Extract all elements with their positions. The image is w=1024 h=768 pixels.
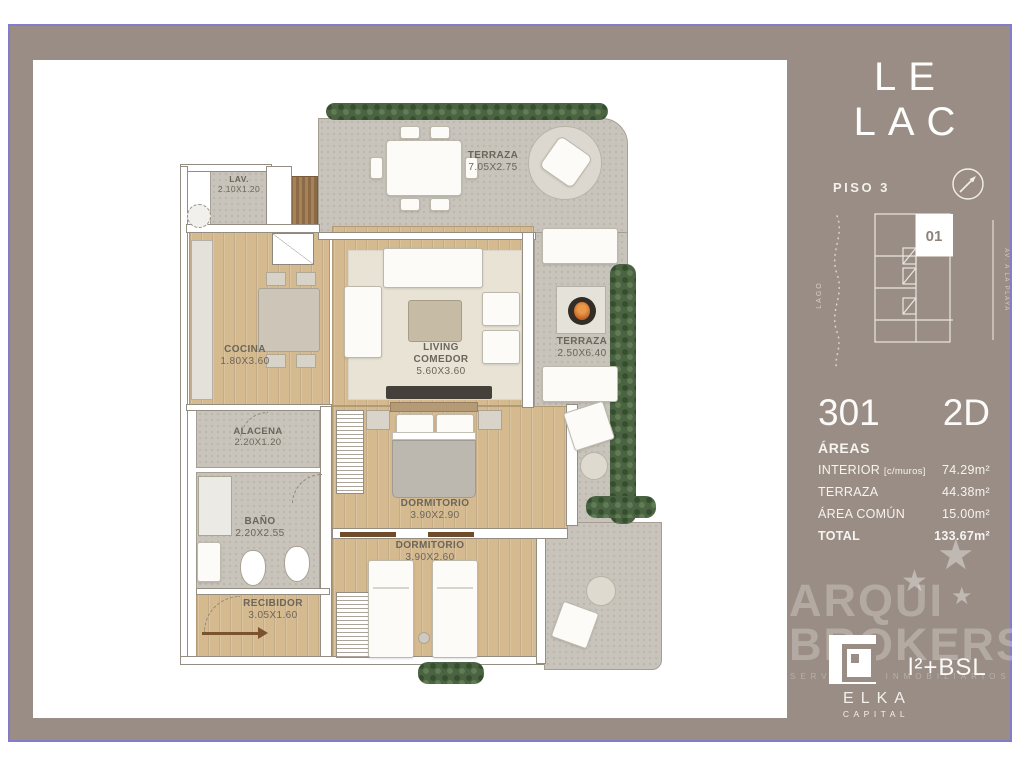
room-name: DORMITORIO: [390, 498, 480, 510]
wardrobe: [336, 410, 364, 494]
armchair: [482, 292, 520, 326]
lounge-cushion: [539, 135, 594, 189]
room-dims: 2.20x2.55: [218, 528, 302, 540]
star-icon: ★: [951, 582, 973, 611]
kitchen-counter: [191, 240, 213, 400]
chair: [430, 126, 450, 139]
areas-row-total: TOTAL 133.67m²: [818, 529, 990, 543]
room-label-terraza-right: TERRAZA 2.50x6.40: [543, 336, 621, 360]
bathroom-vanity: [197, 542, 221, 582]
logo-inner-square: [842, 644, 876, 682]
room-name: COCINA: [203, 344, 287, 356]
toilet: [240, 550, 266, 586]
project-title: LE LAC: [800, 55, 1013, 145]
tv-console: [386, 386, 492, 399]
chair: [400, 126, 420, 139]
area-label: ÁREA COMÚN: [818, 507, 905, 521]
nightstand: [478, 410, 502, 430]
sliding-door: [428, 532, 474, 537]
fire-bowl: [568, 297, 596, 325]
pouf: [586, 576, 616, 606]
developer-name: ELKA: [812, 690, 936, 708]
kitchen-table: [258, 288, 320, 352]
wardrobe: [336, 592, 370, 658]
room-name: TERRAZA: [447, 150, 539, 162]
lake-label: LAGO: [816, 281, 823, 308]
area-value: 74.29m²: [942, 463, 990, 477]
room-label-bano: BAÑO 2.20x2.55: [218, 516, 302, 540]
wall: [522, 232, 534, 408]
developer-logo-elka: ELKA CAPITAL: [812, 690, 936, 719]
room-name: LIVING: [398, 342, 484, 354]
room-name: TERRAZA: [543, 336, 621, 348]
floor-label: PISO 3: [833, 180, 890, 195]
room-label-terraza-top: TERRAZA 7.05x2.75: [447, 150, 539, 174]
room-dims: 5.60x3.60: [398, 366, 484, 378]
room-name: LAV.: [211, 174, 267, 184]
unit-row: 301 2D: [818, 392, 990, 434]
building-key-plan: LAGO 01 AV. A LA PLAYA: [815, 200, 1010, 392]
avenue-label: AV. A LA PLAYA: [1003, 248, 1009, 311]
chair: [266, 272, 286, 286]
wall: [536, 538, 546, 664]
areas-row-terraza: TERRAZA 44.38m²: [818, 485, 990, 499]
room-label-dormitorio-2: DORMITORIO 3.90x2.60: [384, 540, 476, 564]
fire-pit: [556, 286, 606, 334]
single-bed: [432, 560, 478, 658]
bidet: [284, 546, 310, 582]
room-dims: 3.90x2.90: [390, 510, 480, 522]
room-dims: 2.20x1.20: [211, 437, 305, 448]
room-name: ALACENA: [211, 426, 305, 437]
washer: [187, 204, 211, 228]
single-bed: [368, 560, 414, 658]
bed-blanket: [392, 440, 476, 498]
areas-table: ÁREAS INTERIOR [c/muros] 74.29m² TERRAZA…: [818, 440, 990, 551]
wall: [186, 404, 332, 411]
area-label: TERRAZA: [818, 485, 878, 499]
room-name: RECIBIDOR: [222, 598, 324, 610]
watermark-arqui: ARQUI: [789, 580, 944, 621]
hedge: [326, 103, 608, 120]
unit-typology: 2D: [943, 392, 990, 434]
sliding-door: [340, 532, 396, 537]
area-label: INTERIOR [c/muros]: [818, 463, 926, 477]
stool: [418, 632, 430, 644]
chair: [400, 198, 420, 211]
chair: [430, 198, 450, 211]
areas-row-area-comun: ÁREA COMÚN 15.00m²: [818, 507, 990, 521]
bed-headboard: [390, 402, 478, 412]
developer-subtitle: CAPITAL: [812, 709, 936, 719]
room-label-cocina: COCINA 1.80x3.60: [203, 344, 287, 368]
bed-sheet: [392, 432, 476, 440]
room-label-recibidor: RECIBIDOR 3.05x1.60: [222, 598, 324, 622]
areas-row-interior: INTERIOR [c/muros] 74.29m²: [818, 463, 990, 477]
unit-01-label: 01: [926, 228, 943, 245]
wood-deck: [289, 176, 318, 229]
wall: [196, 588, 330, 595]
room-label-living: LIVING COMEDOR 5.60x3.60: [398, 342, 484, 378]
room-name: COMEDOR: [398, 354, 484, 366]
entry-arrow: [202, 632, 258, 635]
wall: [318, 232, 536, 240]
brochure-page: TERRAZA 7.05x2.75 LAV. 2.10x1.20 COCINA …: [0, 0, 1024, 768]
coffee-table: [408, 300, 462, 342]
armchair: [482, 330, 520, 364]
hedge: [418, 662, 484, 684]
outdoor-sofa: [542, 366, 618, 402]
area-label: TOTAL: [818, 529, 860, 543]
chair: [370, 157, 383, 179]
chair: [296, 354, 316, 368]
fire-flame: [574, 302, 590, 320]
bed-sheet: [373, 587, 409, 589]
sofa: [344, 286, 382, 358]
areas-header: ÁREAS: [818, 440, 990, 456]
wall: [266, 166, 292, 232]
room-name: DORMITORIO: [384, 540, 476, 552]
partner-logo-l2bsl: l²+BSL: [908, 654, 987, 682]
shaft-box: [272, 233, 314, 265]
room-dims: 3.90x2.60: [384, 552, 476, 564]
wall: [180, 164, 272, 172]
outdoor-sofa: [542, 228, 618, 264]
logo-inner-dot: [851, 654, 859, 663]
area-value: 44.38m²: [942, 485, 990, 499]
bed-sheet: [437, 587, 473, 589]
arquibrokers-logo-mark: [829, 635, 876, 684]
room-dims: 1.80x3.60: [203, 356, 287, 368]
room-dims: 3.05x1.60: [222, 610, 324, 622]
compass-icon: [948, 164, 988, 204]
room-dims: 2.50x6.40: [543, 348, 621, 360]
wall: [180, 166, 188, 662]
lake-dotted-line: [835, 216, 840, 370]
entry-arrow-head: [258, 627, 268, 639]
unit-number: 301: [818, 392, 880, 434]
room-dims: 7.05x2.75: [447, 162, 539, 174]
room-dims: 2.10x1.20: [211, 184, 267, 194]
room-label-dormitorio-1: DORMITORIO 3.90x2.90: [390, 498, 480, 522]
area-value: 133.67m²: [934, 529, 990, 543]
chair: [296, 272, 316, 286]
pouf: [580, 452, 608, 480]
round-lounge-chair: [528, 126, 602, 200]
room-name: BAÑO: [218, 516, 302, 528]
room-label-alacena: ALACENA 2.20x1.20: [211, 426, 305, 449]
hedge: [586, 496, 656, 518]
sofa: [383, 248, 483, 288]
nightstand: [366, 410, 390, 430]
area-value: 15.00m²: [942, 507, 990, 521]
room-label-lav: LAV. 2.10x1.20: [211, 174, 267, 194]
